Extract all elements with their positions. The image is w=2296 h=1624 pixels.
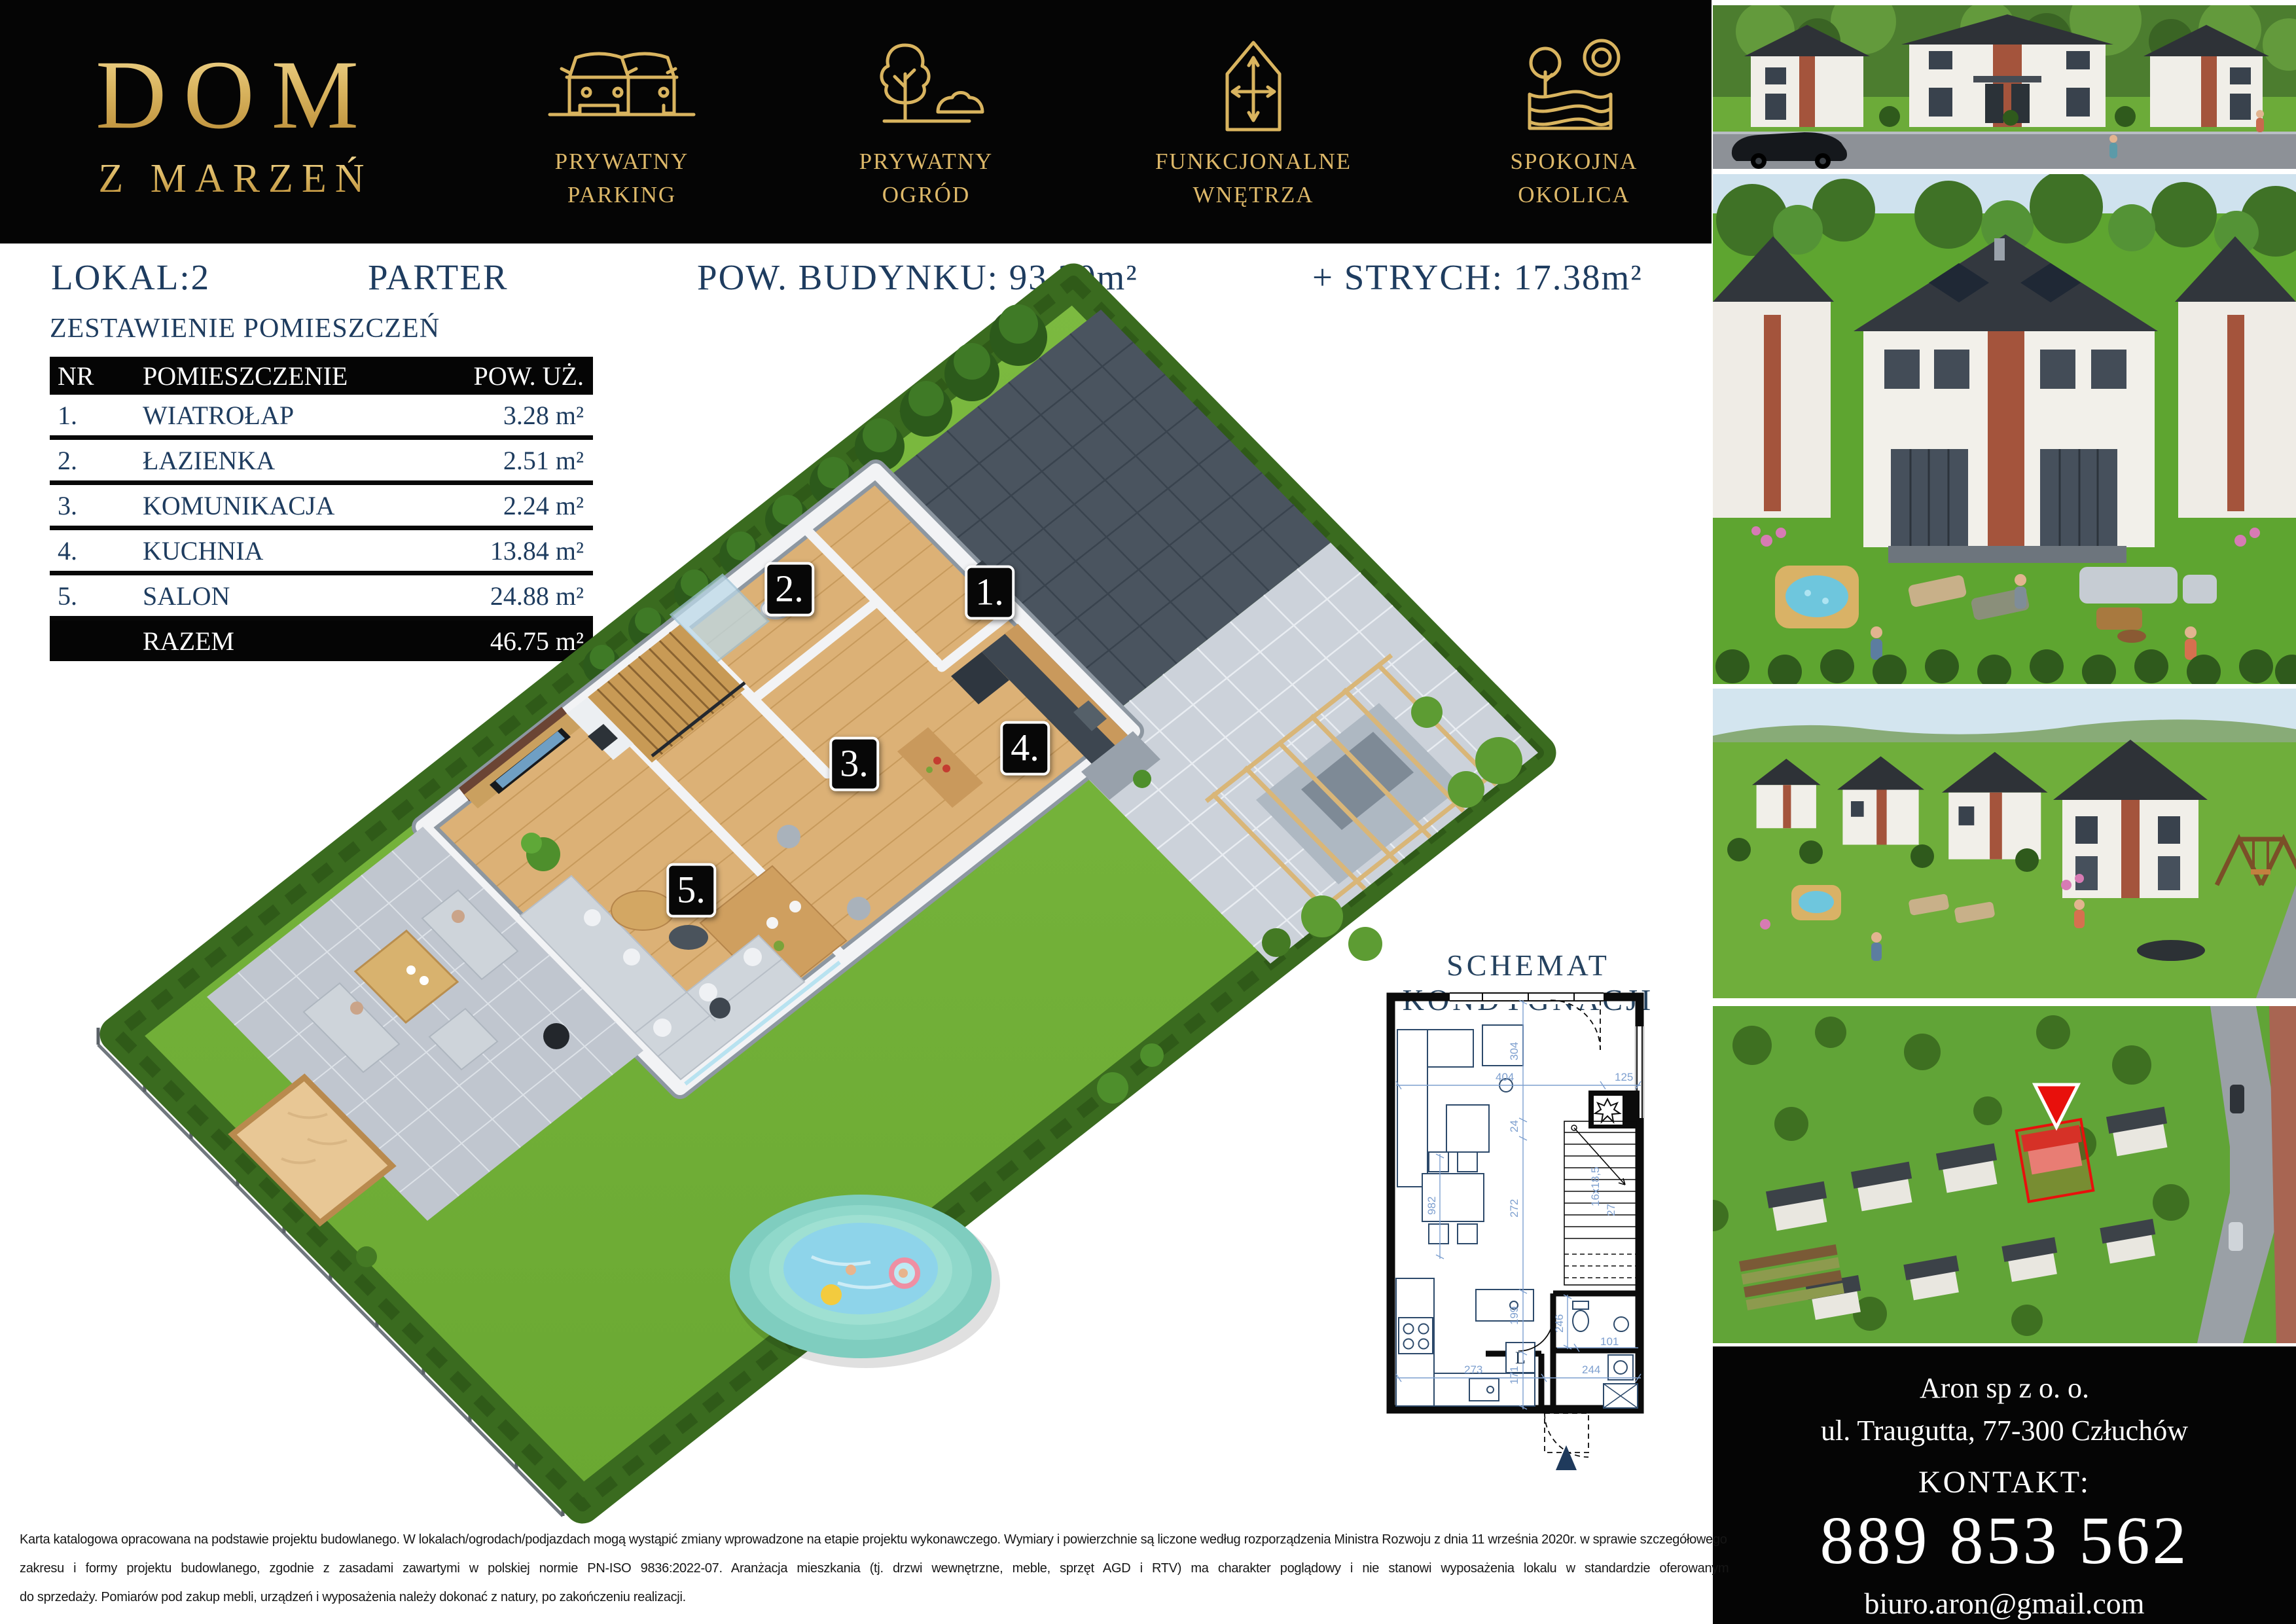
feature-private-garden: PRYWATNYOGRÓD	[782, 31, 1070, 212]
contact-panel: Aron sp z o. o. ul. Traugutta, 77-300 Cz…	[1713, 1346, 2296, 1624]
throw-blanket	[709, 998, 730, 1019]
grill	[543, 1023, 569, 1049]
feature-label: OKOLICA	[1430, 179, 1718, 212]
svg-text:199: 199	[1508, 1307, 1520, 1325]
svg-text:404: 404	[1496, 1071, 1514, 1083]
house-arrows-icon	[1109, 31, 1397, 136]
feature-functional-interiors: FUNKCJONALNEWNĘTRZA	[1109, 31, 1397, 212]
stairs-dimension: 16x18,5	[1589, 1167, 1602, 1207]
feature-label: SPOKOJNA	[1430, 145, 1718, 179]
hot-tub-small	[1791, 885, 1841, 920]
company-name: Aron sp z o. o.	[1713, 1371, 2296, 1405]
photo-street-view	[1713, 5, 2296, 169]
svg-text:304: 304	[1508, 1042, 1520, 1060]
hot-tub	[1775, 566, 1859, 628]
plan-bathroom	[1573, 1301, 1638, 1408]
stairs: 16x18,5 27	[1564, 1121, 1636, 1285]
phone-number: 889 853 562	[1713, 1502, 2296, 1579]
brand-logo: DOM Z MARZEŃ	[52, 46, 419, 202]
feature-label: PRYWATNY	[782, 145, 1070, 179]
plan-toilet	[1573, 1310, 1588, 1331]
render-label-4: 4.	[1000, 721, 1050, 776]
svg-text:246: 246	[1553, 1314, 1566, 1333]
catalog-card: { "header": { "logo1": "DOM", "logo2": "…	[0, 0, 2296, 1624]
logo-line-1: DOM	[52, 46, 419, 144]
svg-text:244: 244	[1582, 1363, 1600, 1376]
render-label-1: 1.	[965, 566, 1014, 620]
calm-landscape-icon	[1430, 31, 1718, 136]
garden-tree-icon	[782, 31, 1070, 136]
highlighted-unit	[2017, 1119, 2094, 1202]
schematic-floorplan: 16x18,5 27 L	[1378, 987, 1653, 1491]
stairs-dimension: 27	[1605, 1204, 1617, 1216]
disclaimer-line: Karta katalogowa opracowana na podstawie…	[20, 1525, 1702, 1554]
coffee-table	[611, 891, 674, 930]
entrance-arrow-icon	[1556, 1445, 1577, 1470]
plan-living-furniture	[1397, 1025, 1523, 1244]
render-label-3: 3.	[829, 737, 879, 791]
svg-text:125: 125	[1615, 1071, 1633, 1083]
photo-aerial-view	[1713, 1006, 2296, 1343]
logo-line-2: Z MARZEŃ	[52, 156, 419, 202]
photo-estate-row	[1713, 689, 2296, 998]
svg-text:982: 982	[1426, 1197, 1438, 1215]
plan-island	[1476, 1290, 1534, 1321]
disclaimer-line: zakresu i formy projektu budowlanego, zg…	[20, 1554, 1702, 1583]
beach-ball	[821, 1284, 842, 1305]
svg-text:24: 24	[1508, 1120, 1520, 1132]
photo-garden-view	[1713, 174, 2296, 684]
render-label-5: 5.	[666, 863, 716, 918]
contact-label: KONTAKT:	[1713, 1464, 2296, 1500]
feature-label: OGRÓD	[782, 179, 1070, 212]
feature-label: PARKING	[478, 179, 766, 212]
svg-text:273: 273	[1464, 1363, 1482, 1376]
feature-calm-area: SPOKOJNAOKOLICA	[1430, 31, 1718, 212]
legal-disclaimer: Karta katalogowa opracowana na podstawie…	[20, 1525, 1702, 1612]
feature-private-parking: PRYWATNYPARKING	[478, 31, 766, 212]
email-address: biuro.aron@gmail.com	[1713, 1586, 2296, 1621]
header-bar: DOM Z MARZEŃ PRYWATNYPARKING	[0, 0, 1712, 244]
feature-label: FUNKCJONALNE	[1109, 145, 1397, 179]
side-table	[669, 925, 708, 950]
disclaimer-line: do sprzedaży. Pomiarów pod zakup mebli, …	[20, 1583, 1702, 1612]
feature-label: WNĘTRZA	[1109, 179, 1397, 212]
trampoline	[2137, 940, 2205, 961]
parking-cars-icon	[478, 31, 766, 136]
render-label-2: 2.	[764, 562, 814, 617]
plan-sink	[1614, 1317, 1628, 1331]
svg-text:101: 101	[1600, 1335, 1619, 1348]
dog	[2117, 630, 2146, 643]
feature-label: PRYWATNY	[478, 145, 766, 179]
svg-text:272: 272	[1508, 1199, 1520, 1218]
plan-kitchen: L	[1396, 1278, 1535, 1406]
company-address: ul. Traugutta, 77-300 Człuchów	[1713, 1414, 2296, 1447]
svg-text:171: 171	[1508, 1366, 1520, 1384]
